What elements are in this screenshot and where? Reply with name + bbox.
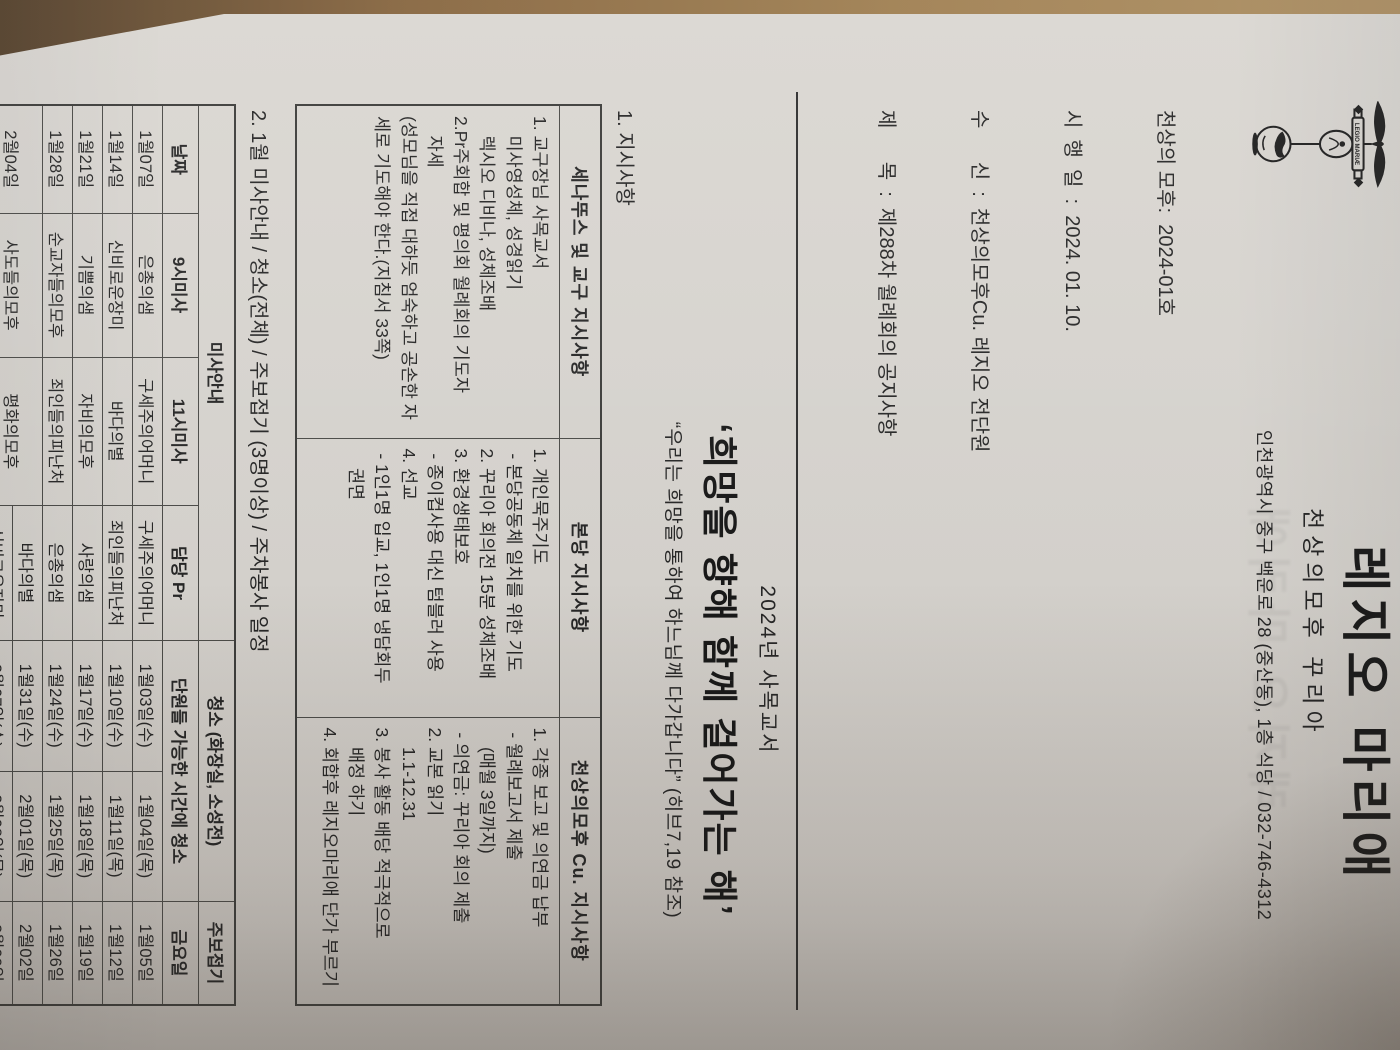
cell-clean1: 1월24일(수) — [43, 641, 73, 772]
col-header-date: 날짜 — [163, 105, 199, 213]
address-line: 인천광역시 중구 백운로 28 (중산동), 1층 식당 / 032-746-4… — [1252, 90, 1278, 1010]
table-row: 2월04일 사도들의모후 평화의모후 바다의별 1월31일(수) 2월01일(목… — [13, 105, 43, 1005]
cell-pr: 사랑의샘 — [73, 506, 103, 641]
cell-9am: 은총의샘 — [133, 213, 163, 357]
section1-heading: 1. 지시사항 — [612, 110, 641, 1010]
pastoral-year-line: 2024년 사목교서 — [754, 330, 784, 1010]
doc-subject-line: 제 목 : 제288차 월례회의 공지사항 — [870, 110, 901, 1010]
document-paper: 레지오 마리애 — [0, 14, 1400, 1050]
cell-clean2: 2월01일(목) — [13, 771, 43, 902]
col-header-clean-sub: 단원들 가능한 시간에 청소 — [163, 641, 199, 902]
senatus-directives-cell: 1. 교구장님 사목교서 미사영성체, 성경읽기 렉시오 디비나, 성체조배 2… — [296, 105, 560, 438]
col-header-9am: 9시미사 — [163, 213, 199, 357]
cell-friday: 2월09일 — [0, 902, 13, 1006]
cell-clean1: 1월03일(수) — [133, 641, 163, 772]
col-header-pr: 담당 Pr — [163, 506, 199, 641]
col-header-11am: 11시미사 — [163, 357, 199, 506]
page-title: 레지오 마리애 — [1334, 90, 1396, 1010]
cell-date: 1월28일 — [43, 105, 73, 213]
section2-heading: 2. 1월 미사안내 / 청소(전체) / 주보접기 (3명이상) / 주차봉사… — [246, 110, 275, 1010]
cell-9am: 기쁨의샘 — [73, 213, 103, 357]
cell-11am: 바다의별 — [103, 357, 133, 506]
cell-clean2: 2월08일(목) — [0, 771, 13, 902]
cell-pr: 은총의샘 — [43, 506, 73, 641]
cell-clean2: 1월11일(목) — [103, 771, 133, 902]
cell-9am: 순교자들의모후 — [43, 213, 73, 357]
mass-cleaning-schedule-table: 미사안내 청소 (화장실, 소성전) 주보접기 날짜 9시미사 11시미사 담당… — [0, 104, 236, 1006]
cell-friday: 1월19일 — [73, 902, 103, 1006]
cell-9am: 사도들의모후 — [0, 213, 43, 357]
header-rule — [796, 92, 798, 1010]
group-header-bulletin: 주보접기 — [199, 902, 236, 1006]
cell-friday: 2월02일 — [13, 902, 43, 1006]
column-header-row: 날짜 9시미사 11시미사 담당 Pr 단원들 가능한 시간에 청소 금요일 — [163, 105, 199, 1005]
table-row: 1월21일 기쁨의샘 자비의모후 사랑의샘 1월17일(수) 1월18일(목) … — [73, 105, 103, 1005]
header-curia: 천상의모후 Cu. 지시사항 — [560, 717, 602, 1005]
cell-pr: 구세주의어머니 — [133, 506, 163, 641]
header-parish: 본당 지시사항 — [560, 438, 602, 717]
cell-11am: 평화의모후 — [0, 357, 43, 506]
col-header-friday: 금요일 — [163, 902, 199, 1006]
svg-text:LEGIO MARIÆ: LEGIO MARIÆ — [1353, 123, 1360, 165]
pastoral-letter-block: 2024년 사목교서 ‘희망을 향해 함께 걸어가는 해’ “우리는 희망을 통… — [661, 90, 784, 1010]
cell-date: 2월04일 — [0, 105, 43, 213]
cell-friday: 1월12일 — [103, 902, 133, 1006]
pastoral-slogan: ‘희망을 향해 함께 걸어가는 해’ — [696, 330, 748, 1010]
cell-11am: 구세주의어머니 — [133, 357, 163, 506]
rotated-document: 레지오 마리애 — [0, 0, 1400, 1050]
cell-date: 1월21일 — [73, 105, 103, 213]
directives-table: 세나뚜스 및 교구 지시사항 본당 지시사항 천상의모후 Cu. 지시사항 1.… — [295, 104, 602, 1006]
cell-friday: 1월26일 — [43, 902, 73, 1006]
cell-clean2: 1월18일(목) — [73, 771, 103, 902]
cell-clean1: 1월10일(수) — [103, 641, 133, 772]
table-row: 1. 교구장님 사목교서 미사영성체, 성경읽기 렉시오 디비나, 성체조배 2… — [296, 105, 560, 1005]
cell-clean2: 1월04일(목) — [133, 771, 163, 902]
cell-clean1: 2월07일(수) — [0, 641, 13, 772]
cell-clean2: 1월25일(목) — [43, 771, 73, 902]
doc-date-line: 시 행 일 : 2024. 01. 10. — [1056, 110, 1087, 1010]
pastoral-quote: “우리는 희망을 통하여 하느님께 다가갑니다” (히브7,19 참조) — [661, 330, 688, 1010]
table-row: 1월28일 순교자들의모후 죄인들의피난처 은총의샘 1월24일(수) 1월25… — [43, 105, 73, 1005]
document-meta: 천상의 모후: 2024-01호 시 행 일 : 2024. 01. 10. 수… — [808, 110, 1242, 1010]
cell-date: 1월14일 — [103, 105, 133, 213]
curia-directives-cell: 1. 각종 보고 및 의연금 납부 - 월례보고서 제출 (매월 3일까지) -… — [296, 717, 560, 1005]
group-header-cleaning: 청소 (화장실, 소성전) — [199, 641, 236, 902]
document-content: LEGIO MARIÆ 레지오 마리애 천상의모후 꾸리아 인천광역시 중구 백… — [0, 14, 1400, 1050]
cell-clean1: 1월31일(수) — [13, 641, 43, 772]
doc-recipient-line: 수 신 : 천상의모후Cu. 레지오 전단원 — [963, 110, 994, 1010]
doc-number-line: 천상의 모후: 2024-01호 — [1149, 110, 1180, 1010]
table-row: 1월07일 은총의샘 구세주의어머니 구세주의어머니 1월03일(수) 1월04… — [133, 105, 163, 1005]
parish-directives-cell: 1. 개인묵주기도 - 본당공동체 일치를 위한 기도 2. 꾸리아 회의전 1… — [296, 438, 560, 717]
photo-frame: 레지오 마리애 — [0, 0, 1400, 1050]
cell-11am: 자비의모후 — [73, 357, 103, 506]
cell-9am: 신비로운장미 — [103, 213, 133, 357]
table-header-row: 세나뚜스 및 교구 지시사항 본당 지시사항 천상의모후 Cu. 지시사항 — [560, 105, 602, 1005]
cell-date: 1월07일 — [133, 105, 163, 213]
cell-pr: 바다의별 — [13, 506, 43, 641]
header-senatus: 세나뚜스 및 교구 지시사항 — [560, 105, 602, 438]
cell-clean1: 1월17일(수) — [73, 641, 103, 772]
cell-pr: 죄인들의피난처 — [103, 506, 133, 641]
table-row: 1월14일 신비로운장미 바다의별 죄인들의피난처 1월10일(수) 1월11일… — [103, 105, 133, 1005]
legion-vexillum-emblem-icon: LEGIO MARIÆ — [1252, 70, 1394, 218]
group-header-row: 미사안내 청소 (화장실, 소성전) 주보접기 — [199, 105, 236, 1005]
curia-subtitle: 천상의모후 꾸리아 — [1298, 508, 1332, 1010]
group-header-mass: 미사안내 — [199, 105, 236, 641]
cell-pr: 신비로운장미 — [0, 506, 13, 641]
cell-friday: 1월05일 — [133, 902, 163, 1006]
cell-11am: 죄인들의피난처 — [43, 357, 73, 506]
